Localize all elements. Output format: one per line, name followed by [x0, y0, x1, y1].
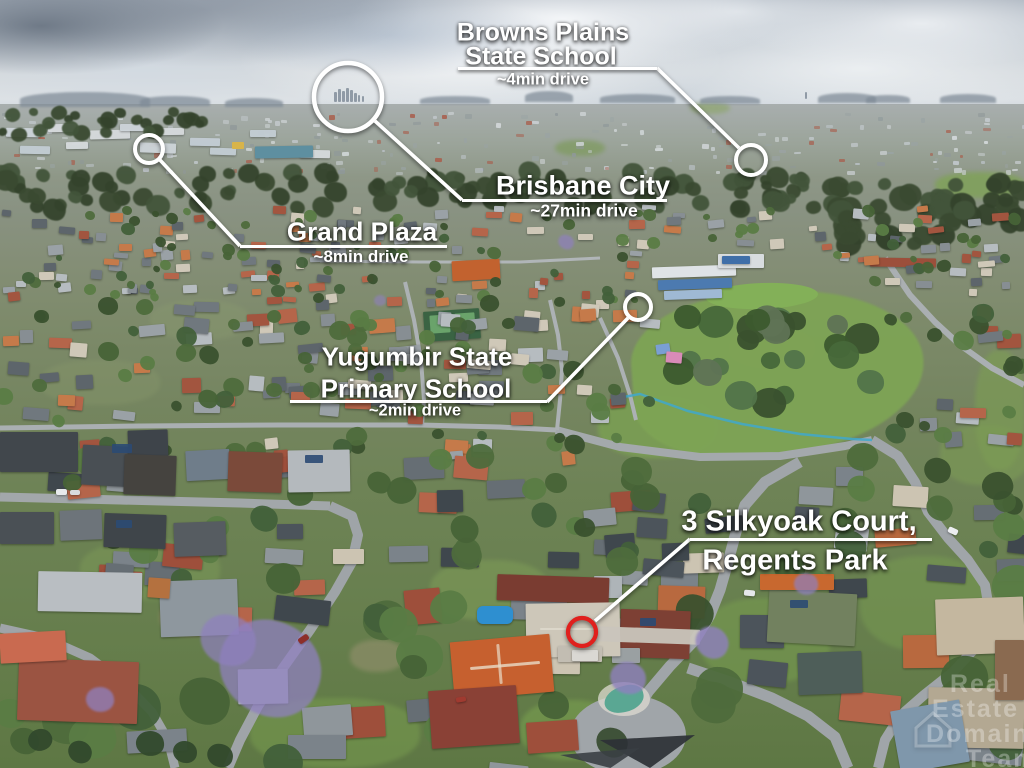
property-connector-line	[595, 539, 690, 621]
grand-plaza-marker-circle	[135, 135, 163, 163]
browns-plains-drive-time: ~4min drive	[497, 71, 589, 90]
property-marker-circle	[568, 618, 596, 646]
property-underline	[690, 538, 932, 541]
annotation-overlay	[0, 0, 1024, 768]
property-label-line1: 3 Silkyoak Court,	[681, 506, 916, 539]
yugumbir-connector-line	[547, 318, 628, 402]
brisbane-city-label: Brisbane City	[496, 171, 670, 202]
yugumbir-drive-time: ~2min drive	[369, 402, 461, 421]
brisbane-city-connector-line	[375, 121, 462, 200]
aerial-photo: Browns Plains State School ~4min drive B…	[0, 0, 1024, 768]
yugumbir-label-line1: Yugumbir State	[322, 342, 513, 373]
yugumbir-marker-circle	[625, 294, 651, 320]
property-label-line2: Regents Park	[702, 545, 887, 578]
browns-plains-underline	[458, 67, 657, 70]
watermark-line4: Team	[966, 745, 1024, 768]
browns-plains-marker-circle	[736, 145, 766, 175]
grand-plaza-label: Grand Plaza	[287, 217, 437, 248]
grand-plaza-drive-time: ~8min drive	[314, 247, 409, 267]
grand-plaza-connector-line	[160, 160, 240, 246]
brisbane-city-marker-circle	[314, 63, 382, 131]
browns-plains-connector-line	[657, 68, 739, 148]
brisbane-city-drive-time: ~27min drive	[530, 201, 638, 222]
